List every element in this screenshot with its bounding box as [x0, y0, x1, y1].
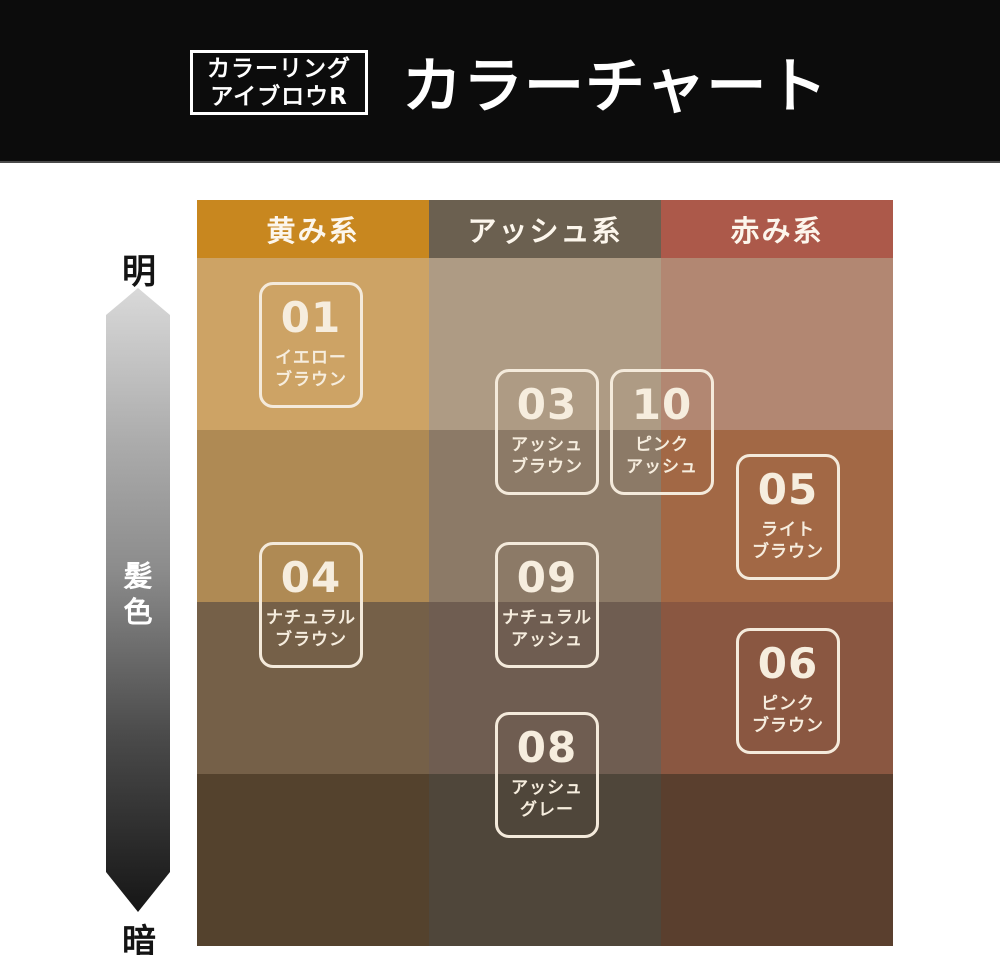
shade-09-natural-ash: 09 ナチュラル アッシュ: [495, 542, 599, 668]
brightness-bottom-label: 暗: [122, 914, 156, 955]
color-chart-page: カラーリング アイブロウR カラーチャート 明 髪 色 暗 黄み系 アッシュ系 …: [0, 0, 1000, 955]
shade-name-line2: アッシュ: [626, 456, 698, 478]
shade-05-light-brown: 05 ライト ブラウン: [736, 454, 840, 580]
shade-name-line2: ブラウン: [752, 715, 824, 737]
shade-01-yellow-brown: 01 イエロー ブラウン: [259, 282, 363, 408]
shade-04-natural-brown: 04 ナチュラル ブラウン: [259, 542, 363, 668]
shade-number: 04: [281, 556, 341, 600]
shade-name-line2: ブラウン: [275, 629, 347, 651]
shade-name-line1: イエロー: [275, 347, 347, 369]
shade-name-line2: ブラウン: [752, 541, 824, 563]
column-header-ash: アッシュ系: [429, 200, 661, 258]
shade-name-line2: アッシュ: [511, 629, 583, 651]
page-title: カラーチャート: [402, 0, 828, 163]
shade-number: 01: [281, 296, 341, 340]
banner: カラーリング アイブロウR カラーチャート: [0, 0, 1000, 163]
shade-number: 03: [517, 383, 577, 427]
cell-yellow-row4: [197, 774, 429, 946]
shade-number: 08: [517, 726, 577, 770]
column-header-red: 赤み系: [661, 200, 893, 258]
shade-name-line1: アッシュ: [511, 777, 583, 799]
hair-color-label: 髪 色: [106, 560, 170, 628]
shade-number: 10: [632, 383, 692, 427]
shade-number: 06: [758, 642, 818, 686]
shade-10-pink-ash: 10 ピンク アッシュ: [610, 369, 714, 495]
shade-name-line2: ブラウン: [511, 456, 583, 478]
shade-name-line1: ナチュラル: [266, 607, 356, 629]
shade-name-line2: グレー: [520, 799, 574, 821]
cell-red-row4: [661, 774, 893, 946]
shade-03-ash-brown: 03 アッシュ ブラウン: [495, 369, 599, 495]
product-name-line2: アイブロウR: [210, 83, 348, 111]
shade-name-line1: ピンク: [761, 693, 815, 715]
shade-number: 09: [517, 556, 577, 600]
brightness-top-label: 明: [122, 244, 156, 293]
product-name-box: カラーリング アイブロウR: [190, 50, 368, 115]
shade-number: 05: [758, 468, 818, 512]
column-header-yellow: 黄み系: [197, 200, 429, 258]
shade-06-pink-brown: 06 ピンク ブラウン: [736, 628, 840, 754]
hair-color-char1: 髪: [123, 560, 152, 592]
shade-name-line2: ブラウン: [275, 369, 347, 391]
shade-name-line1: アッシュ: [511, 434, 583, 456]
hair-color-char2: 色: [123, 596, 152, 628]
shade-08-ash-gray: 08 アッシュ グレー: [495, 712, 599, 838]
product-name-line1: カラーリング: [207, 55, 351, 83]
brightness-gradient-arrow: 髪 色: [106, 288, 170, 912]
shade-name-line1: ライト: [761, 519, 815, 541]
shade-name-line1: ナチュラル: [502, 607, 592, 629]
shade-name-line1: ピンク: [635, 434, 689, 456]
